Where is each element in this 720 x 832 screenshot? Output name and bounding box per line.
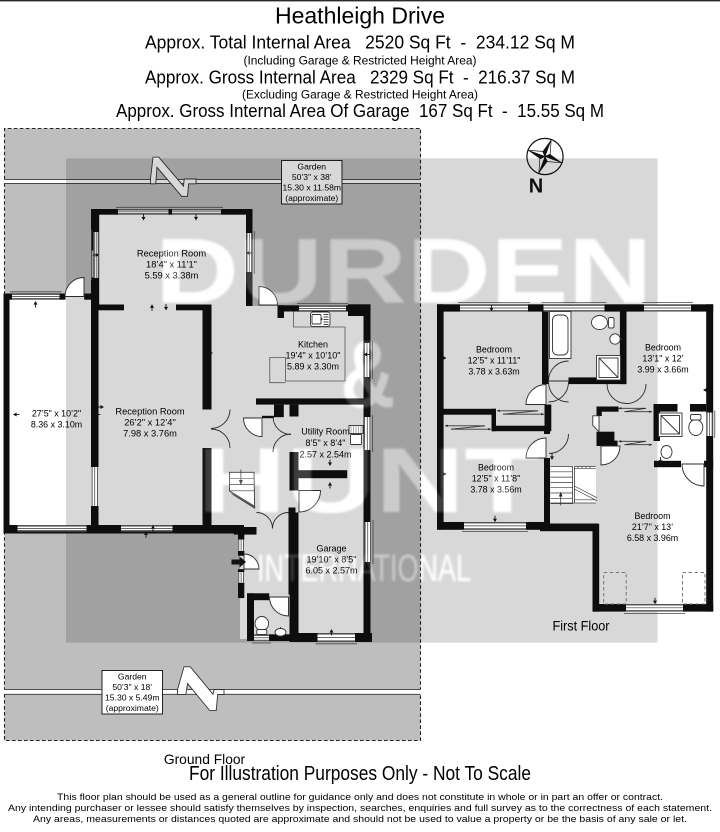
- svg-text:3.99 x 3.66m: 3.99 x 3.66m: [637, 365, 688, 375]
- svg-text:3.78 x 3.63m: 3.78 x 3.63m: [468, 367, 519, 377]
- svg-text:First Floor: First Floor: [553, 619, 610, 634]
- svg-text:HUNT: HUNT: [197, 430, 540, 532]
- svg-text:8.36 x 3.10m: 8.36 x 3.10m: [31, 420, 82, 430]
- svg-text:Bedroom: Bedroom: [645, 343, 681, 353]
- svg-text:(approximate): (approximate): [106, 703, 159, 713]
- svg-text:Approx. Gross Internal Area Of: Approx. Gross Internal Area Of Garage 16…: [116, 100, 604, 121]
- svg-text:Bedroom: Bedroom: [476, 345, 512, 355]
- svg-text:For Illustration Purposes Only: For Illustration Purposes Only - Not To …: [189, 763, 531, 785]
- svg-text:19’4" x 10’10": 19’4" x 10’10": [286, 351, 341, 361]
- svg-text:Any areas, measurements or dis: Any areas, measurements or distances quo…: [33, 814, 687, 825]
- svg-text:Approx. Gross Internal Area: Approx. Gross Internal Area 2329 Sq Ft -…: [145, 67, 575, 88]
- svg-text:21’7" x 13’: 21’7" x 13’: [632, 522, 673, 532]
- svg-text:Kitchen: Kitchen: [298, 340, 328, 350]
- svg-text:12’5" x 11’11": 12’5" x 11’11": [468, 356, 521, 366]
- svg-text:INTERNATIONAL: INTERNATIONAL: [257, 548, 471, 590]
- svg-text:Bedroom: Bedroom: [634, 511, 670, 521]
- svg-text:5.89 x 3.30m: 5.89 x 3.30m: [287, 362, 339, 372]
- svg-text:Approx. Total Internal Area: Approx. Total Internal Area 2520 Sq Ft -…: [145, 32, 575, 53]
- svg-text:Any intending purchaser or les: Any intending purchaser or lessee should…: [8, 803, 712, 814]
- svg-text:6.58 x 3.96m: 6.58 x 3.96m: [627, 533, 678, 543]
- svg-text:&: &: [341, 321, 395, 428]
- svg-text:This floor plan should be used: This floor plan should be used as a gene…: [57, 792, 663, 803]
- svg-text:Reception Room: Reception Room: [115, 407, 185, 417]
- svg-text:DURDEN: DURDEN: [155, 221, 652, 323]
- svg-text:26’2" x 12’4": 26’2" x 12’4": [124, 418, 176, 428]
- svg-text:Garden: Garden: [118, 672, 147, 682]
- svg-text:7.98 x 3.76m: 7.98 x 3.76m: [123, 429, 177, 439]
- svg-text:(Including Garage & Restricted: (Including Garage & Restricted Height Ar…: [244, 54, 477, 68]
- svg-text:27’5" x 10’2": 27’5" x 10’2": [32, 409, 81, 419]
- svg-text:15.30 x 5.49m: 15.30 x 5.49m: [105, 693, 159, 703]
- svg-text:50’3" x 18’: 50’3" x 18’: [112, 682, 152, 692]
- svg-text:13’1" x 12’: 13’1" x 12’: [642, 354, 683, 364]
- svg-text:Heathleigh Drive: Heathleigh Drive: [275, 3, 445, 29]
